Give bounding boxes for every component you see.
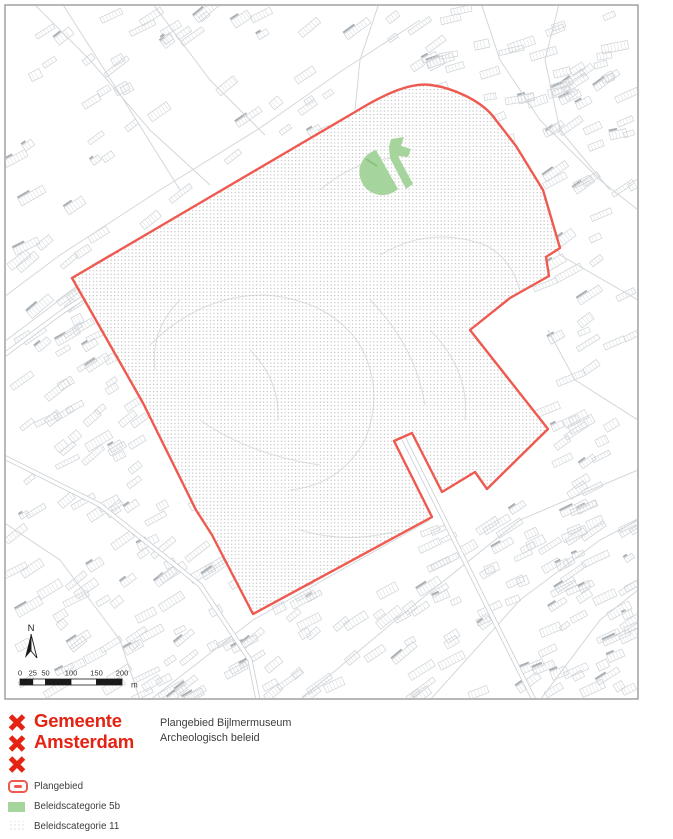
map-area: N 02550100150200m <box>0 0 673 710</box>
logo-line-amsterdam: Amsterdam <box>34 732 134 753</box>
svg-text:25: 25 <box>29 669 37 678</box>
map-title: Plangebied Bijlmermuseum Archeologisch b… <box>160 716 291 746</box>
logo-text: Gemeente Amsterdam <box>34 711 134 752</box>
svg-text:100: 100 <box>65 669 78 678</box>
beleidscategorie-11-swatch-icon <box>8 821 24 832</box>
legend-item-beleidscategorie-11: Beleidscategorie 11 <box>8 820 120 833</box>
beleidscategorie-5b-swatch-icon <box>8 802 25 812</box>
map-title-line2: Archeologisch beleid <box>160 731 291 746</box>
legend-label-plangebied: Plangebied <box>34 781 83 792</box>
plangebied-swatch-icon <box>8 780 28 793</box>
logo-line-gemeente: Gemeente <box>34 711 134 732</box>
svg-text:50: 50 <box>41 669 49 678</box>
map-legend-footer: Gemeente Amsterdam Plangebied Bijlmermus… <box>0 700 673 839</box>
legend-label-beleidscategorie-11: Beleidscategorie 11 <box>34 821 119 832</box>
map-title-line1: Plangebied Bijlmermuseum <box>160 716 291 731</box>
legend-label-beleidscategorie-5b: Beleidscategorie 5b <box>34 801 120 812</box>
svg-text:200: 200 <box>116 669 129 678</box>
legend: Plangebied Beleidscategorie 5b Beleidsca… <box>8 780 120 833</box>
legend-item-beleidscategorie-5b: Beleidscategorie 5b <box>8 800 120 813</box>
north-label: N <box>28 623 35 634</box>
amsterdam-logo-icon <box>7 713 29 777</box>
svg-text:0: 0 <box>18 669 22 678</box>
map-canvas: N 02550100150200m <box>0 0 673 710</box>
legend-item-plangebied: Plangebied <box>8 780 120 793</box>
svg-text:150: 150 <box>90 669 103 678</box>
svg-text:m: m <box>131 681 138 690</box>
